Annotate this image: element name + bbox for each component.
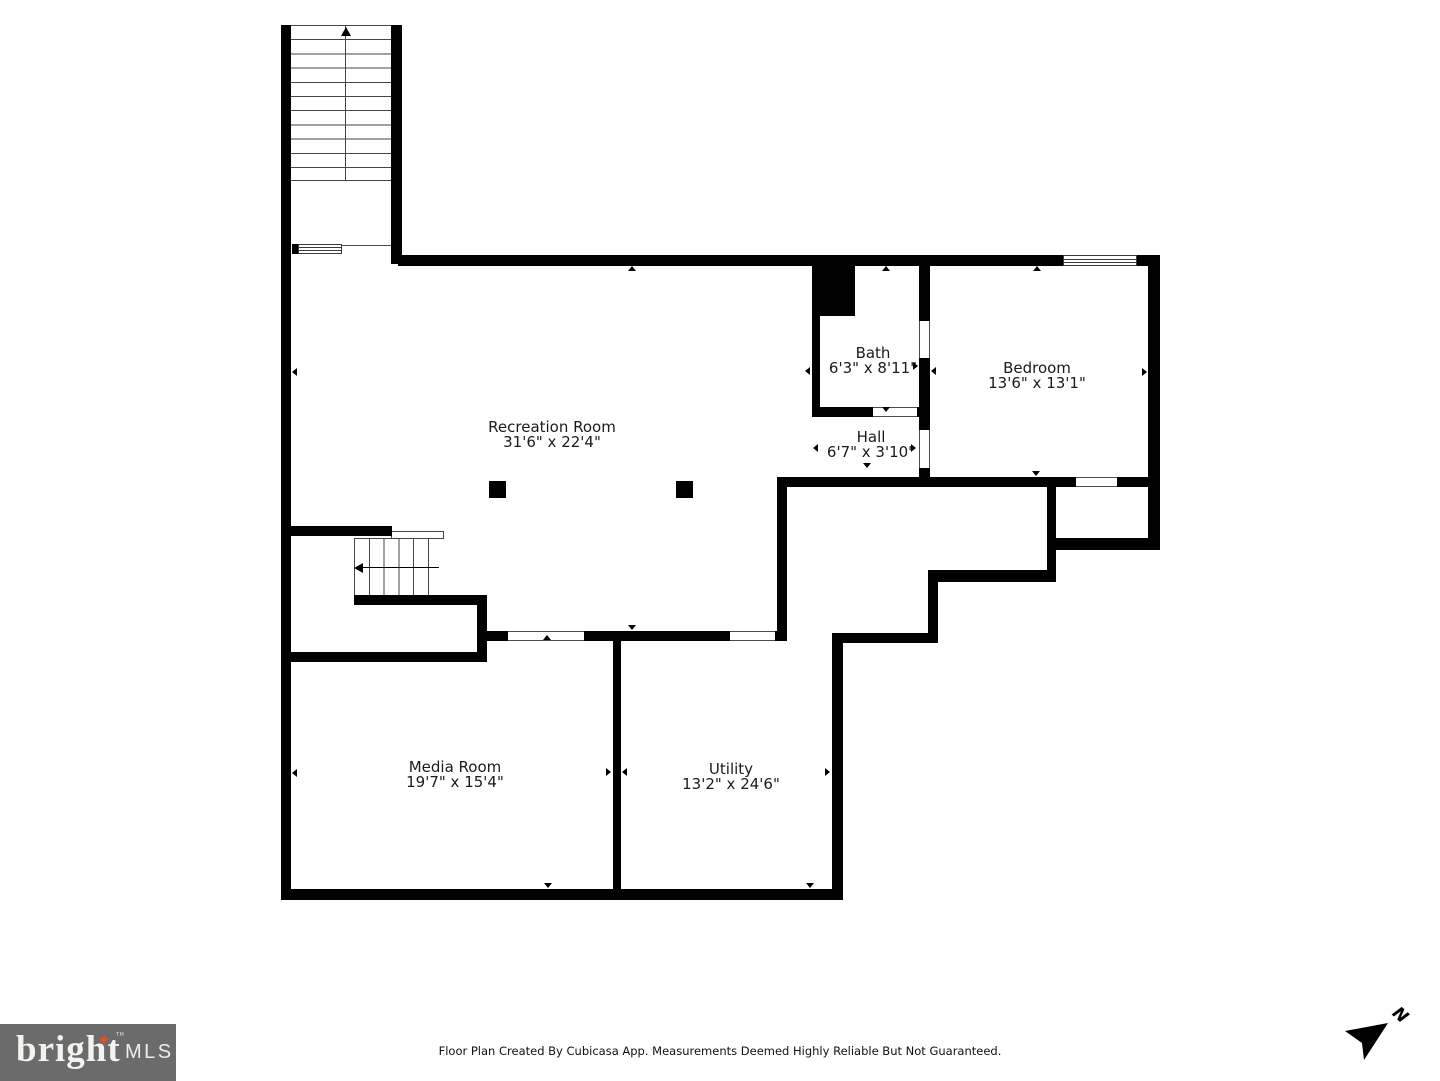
room-label-hall: Hall 6'7" x 3'10" [827,430,915,460]
wall [812,407,873,417]
measure-arrow-up-icon [628,266,636,271]
floor-plan-canvas: Recreation Room 31'6" x 22'4" Bath 6'3" … [0,0,1440,1081]
north-arrow: N [1335,1000,1435,1080]
measure-arrow-right-icon [913,362,918,370]
room-label-bedroom: Bedroom 13'6" x 13'1" [988,361,1086,391]
measure-arrow-up-icon [543,635,551,640]
north-arrow-icon: N [1335,1000,1435,1080]
door-opening-line [730,631,775,632]
window [1063,255,1137,266]
wall [835,633,938,643]
support-post [489,481,506,498]
support-post [676,481,693,498]
wall [281,652,487,662]
measure-arrow-left-icon [292,368,297,376]
measure-arrow-left-icon [292,769,297,777]
wall [832,633,843,900]
wall [1047,487,1056,582]
wall [281,889,843,900]
room-dimensions: 13'2" x 24'6" [682,777,780,792]
wall [1148,255,1160,550]
door-opening-line [508,631,584,632]
door-opening-line [929,430,930,468]
door-opening-line [919,430,920,468]
wall [919,358,930,430]
wall [812,315,820,417]
room-label-bath: Bath 6'3" x 8'11" [829,346,917,376]
window [298,244,342,254]
door-opening-line [1076,486,1117,487]
door-opening-line [929,321,930,358]
wall [584,631,730,641]
measure-arrow-left-icon [805,367,810,375]
door-opening-line [873,416,917,417]
measure-arrow-right-icon [606,768,611,776]
wall [281,526,392,536]
measure-arrow-down-icon [863,463,871,468]
stair-direction-line [345,25,346,180]
door-opening-line [342,245,391,246]
room-dimensions: 6'7" x 3'10" [827,445,915,460]
stair-down-arrow-icon [354,563,363,573]
disclaimer-text: Floor Plan Created By Cubicasa App. Meas… [0,1044,1440,1058]
room-dimensions: 19'7" x 15'4" [406,775,504,790]
measure-arrow-left-icon [813,444,818,452]
wall [485,631,508,641]
stair-treads [291,25,391,181]
wall [398,255,1063,266]
measure-arrow-up-icon [882,266,890,271]
wall [919,266,930,321]
logo-star-icon: ✦ [97,1031,111,1051]
wall [391,25,402,264]
logo-trademark: TM [116,1032,124,1038]
wall [613,632,621,900]
door-opening-line [873,407,917,408]
room-dimensions: 6'3" x 8'11" [829,361,917,376]
brightmls-logo: bright ✦ TM MLS [0,1024,176,1081]
stair-direction-line [362,567,439,568]
north-label: N [1388,1003,1412,1027]
wall [1117,477,1160,487]
measure-arrow-down-icon [806,883,814,888]
measure-arrow-left-icon [622,768,627,776]
wall [281,25,291,900]
logo-mls-text: MLS [125,1041,174,1064]
wall [1056,538,1160,550]
wall [812,263,855,316]
staircase-lower [354,531,444,595]
measure-arrow-down-icon [544,883,552,888]
measure-arrow-left-icon [931,367,936,375]
room-label-utility: Utility 13'2" x 24'6" [682,762,780,792]
room-label-recreation: Recreation Room 31'6" x 22'4" [488,420,616,450]
door-opening-line [1076,477,1117,478]
room-label-media: Media Room 19'7" x 15'4" [406,760,504,790]
measure-arrow-right-icon [825,768,830,776]
room-dimensions: 13'6" x 13'1" [988,376,1086,391]
measure-arrow-down-icon [882,407,890,412]
wall [930,570,1056,582]
wall [354,595,487,605]
room-dimensions: 31'6" x 22'4" [488,435,616,450]
door-opening-line [508,640,584,641]
measure-arrow-up-icon [1033,266,1041,271]
measure-arrow-down-icon [1032,471,1040,476]
measure-arrow-down-icon [628,625,636,630]
door-opening-line [730,640,775,641]
measure-arrow-right-icon [1142,368,1147,376]
staircase-upper [291,25,391,244]
wall [919,468,930,487]
door-opening-line [919,321,920,358]
wall [777,477,787,641]
measure-arrow-right-icon [911,444,916,452]
stair-up-arrow-icon [341,27,351,36]
